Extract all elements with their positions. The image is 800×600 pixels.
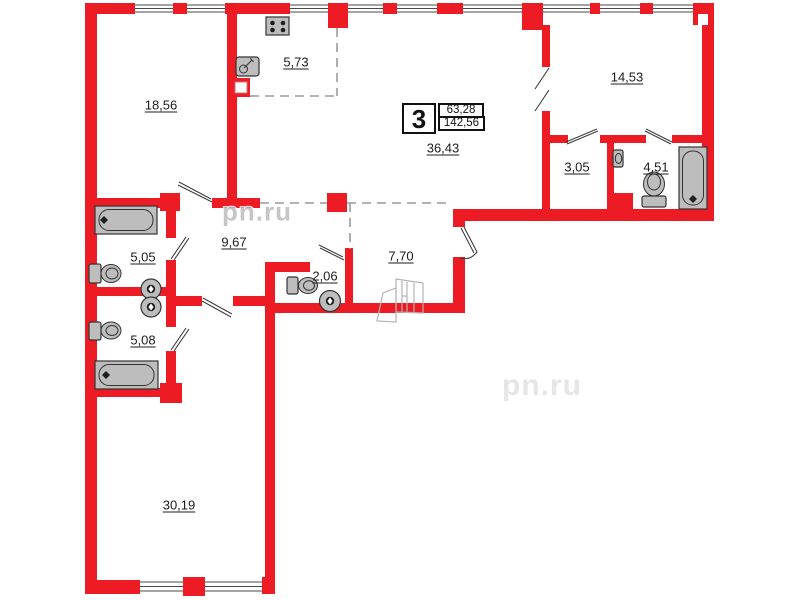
room-label-5-73: 5,73 [283, 55, 308, 70]
room-label-4-51: 4,51 [643, 160, 668, 175]
drain-icon-2 [141, 297, 161, 317]
drain-icon-1 [141, 279, 161, 299]
door-leaf-storage [566, 129, 598, 144]
door-leaf-bath-lower [171, 328, 189, 351]
watermark-pnru-2: pn.ru [502, 369, 582, 403]
floor-plan-drawing [0, 0, 800, 600]
door-leaf-wc-small [319, 245, 344, 260]
door-leaf-bath-upper [171, 237, 189, 260]
room-label-2-06: 2,06 [312, 269, 337, 284]
toilet-icon-bath-upper [89, 264, 121, 283]
bathtub-icon-upper-left [95, 206, 157, 234]
bathtub-icon-right [679, 147, 707, 209]
sink-icon-bath-right [613, 150, 623, 167]
room-label-7-70: 7,70 [388, 249, 413, 264]
toilet-icon-bath-right [642, 172, 666, 207]
opening-zigzag-room-14-53 [535, 68, 549, 111]
total-area-value: 142,56 [438, 116, 485, 131]
wardrobe-sketch [377, 279, 423, 322]
room-label-18-56: 18,56 [145, 98, 178, 113]
watermark-pnru-1: pn.ru [222, 197, 292, 228]
window-lines-top [135, 5, 693, 12]
floor-plan: 18,56 5,73 14,53 36,43 3,05 4,51 9,67 5,… [0, 0, 800, 600]
toilet-icon-bath-lower [89, 322, 121, 340]
stove-icon [266, 17, 289, 35]
door-leaf-room-18-56 [178, 182, 212, 202]
drain-icon-3 [320, 291, 341, 312]
room-label-3-05: 3,05 [564, 160, 589, 175]
kitchen-sink-icon [236, 57, 259, 76]
room-label-5-08: 5,08 [130, 333, 155, 348]
door-leaf-living-bottom [202, 298, 232, 317]
entrance-door-leaf [460, 227, 477, 259]
door-leaf-bath-right [645, 129, 672, 144]
apartment-info-badge: 3 63,28 142,56 [402, 103, 485, 134]
room-label-14-53: 14,53 [611, 70, 644, 85]
room-count: 3 [402, 103, 436, 134]
room-label-36-43: 36,43 [427, 141, 460, 156]
room-label-5-05: 5,05 [130, 250, 155, 265]
room-label-9-67: 9,67 [221, 235, 246, 250]
bathtub-icon-lower-left [95, 361, 158, 389]
room-label-30-19: 30,19 [163, 498, 196, 513]
